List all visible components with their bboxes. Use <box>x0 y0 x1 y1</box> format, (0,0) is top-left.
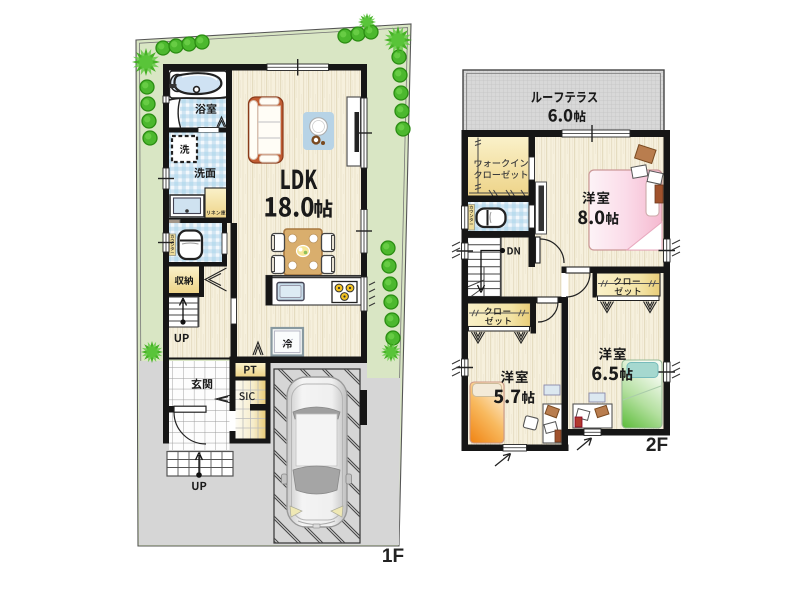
svg-text:1F: 1F <box>382 546 404 567</box>
svg-text:2F: 2F <box>646 435 668 456</box>
